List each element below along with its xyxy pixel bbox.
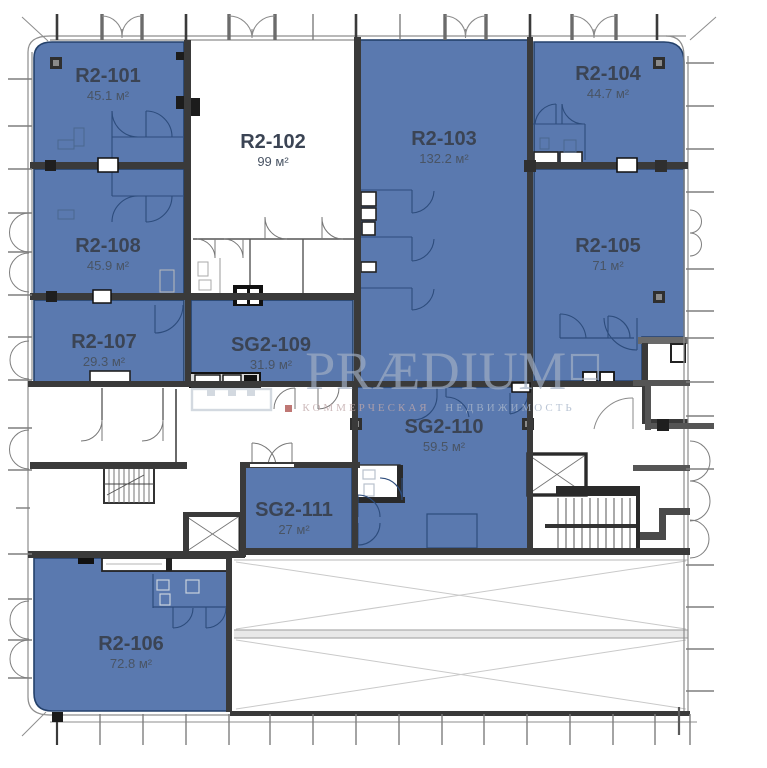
svg-text:НЕДВИЖИМОСТЬ: НЕДВИЖИМОСТЬ	[445, 402, 574, 414]
svg-text:31.9 м²: 31.9 м²	[250, 357, 293, 372]
svg-text:R2-108: R2-108	[75, 235, 141, 257]
svg-text:SG2-111: SG2-111	[255, 499, 333, 521]
svg-text:КОММЕРЧЕСКАЯ: КОММЕРЧЕСКАЯ	[302, 402, 429, 414]
svg-text:132.2 м²: 132.2 м²	[419, 151, 469, 166]
svg-text:72.8 м²: 72.8 м²	[110, 656, 153, 671]
svg-text:R2-104: R2-104	[575, 63, 641, 85]
svg-text:99 м²: 99 м²	[257, 154, 289, 169]
svg-text:R2-103: R2-103	[411, 128, 477, 150]
svg-text:29.3 м²: 29.3 м²	[83, 354, 126, 369]
svg-text:59.5 м²: 59.5 м²	[423, 439, 466, 454]
svg-text:44.7 м²: 44.7 м²	[587, 86, 630, 101]
svg-text:R2-101: R2-101	[75, 65, 141, 87]
svg-text:R2-106: R2-106	[98, 633, 164, 655]
svg-text:R2-102: R2-102	[240, 131, 306, 153]
svg-text:45.1 м²: 45.1 м²	[87, 88, 130, 103]
svg-text:PRÆDIUM: PRÆDIUM	[305, 341, 567, 401]
svg-text:27 м²: 27 м²	[278, 522, 310, 537]
svg-text:R2-105: R2-105	[575, 235, 641, 257]
svg-text:SG2-110: SG2-110	[405, 416, 484, 438]
svg-text:71 м²: 71 м²	[592, 258, 624, 273]
svg-text:R2-107: R2-107	[71, 331, 137, 353]
svg-text:SG2-109: SG2-109	[231, 334, 311, 356]
svg-text:45.9 м²: 45.9 м²	[87, 258, 130, 273]
